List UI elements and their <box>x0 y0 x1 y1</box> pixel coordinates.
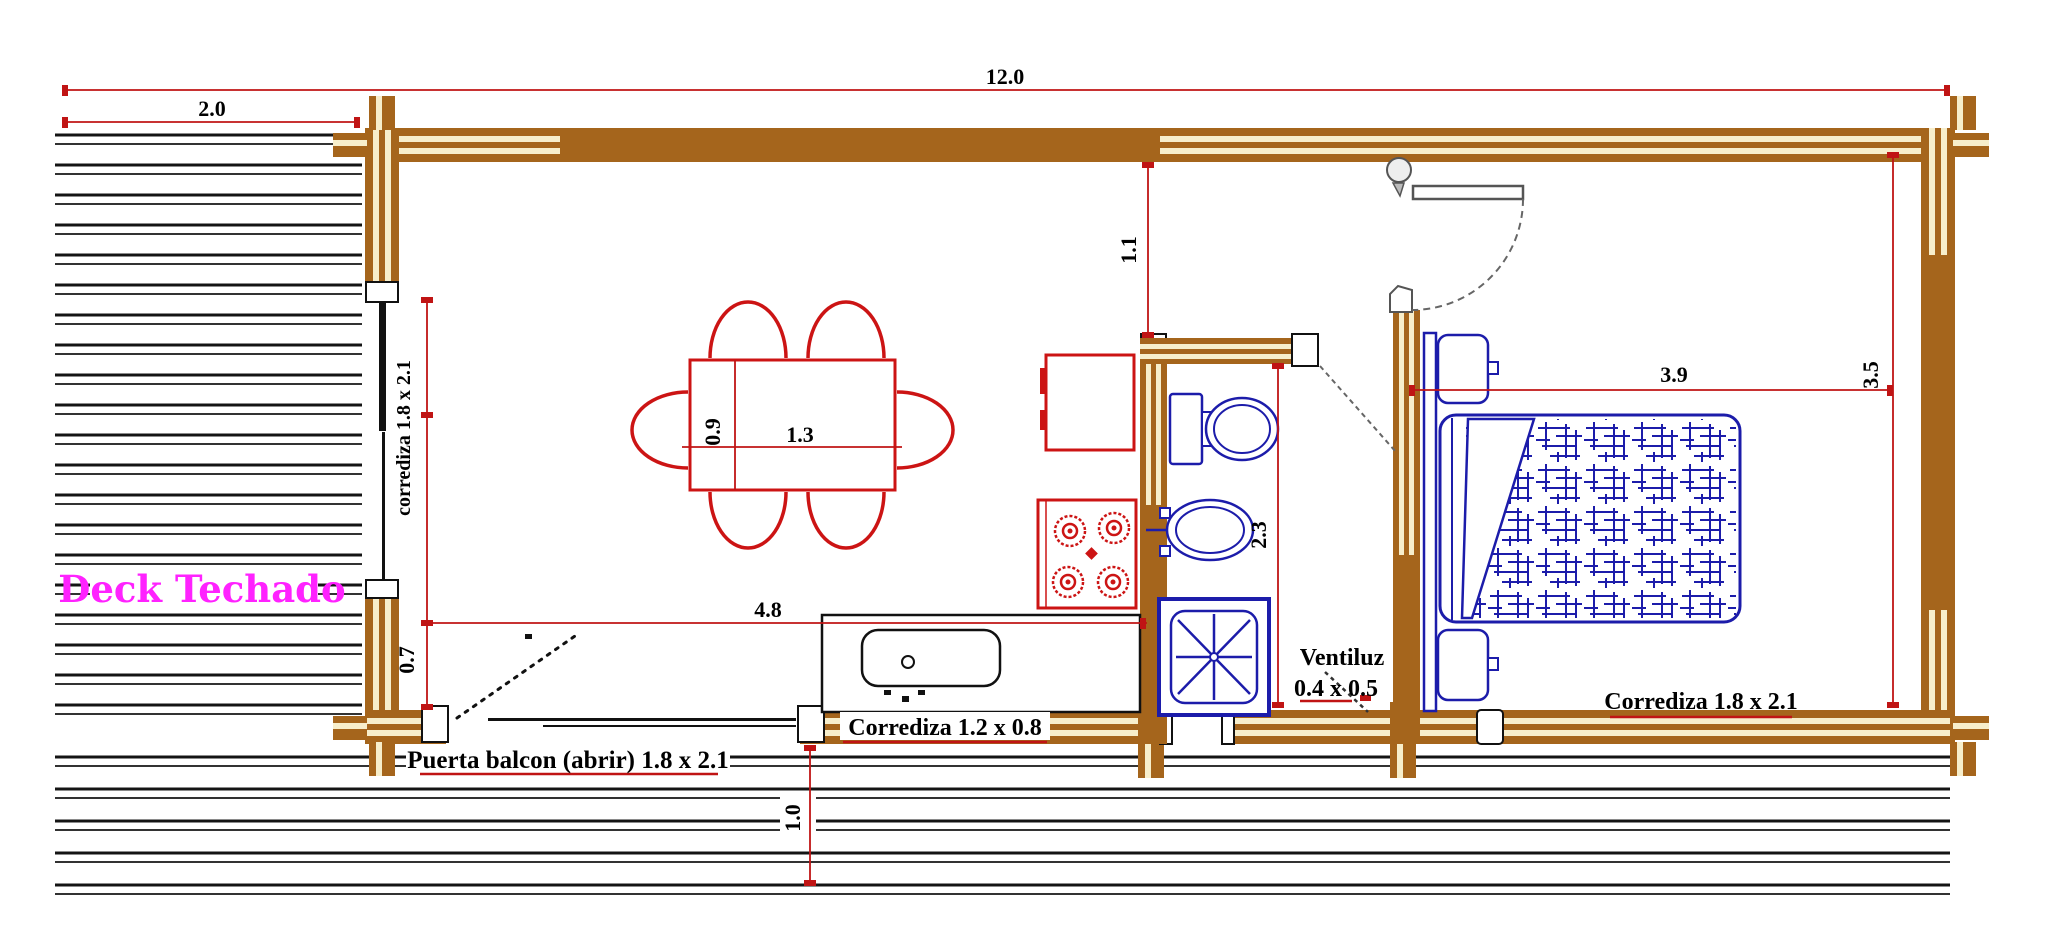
dim-bedroom-depth: 3.5 <box>1858 361 1883 389</box>
balcony-door-tick <box>525 634 532 639</box>
chair-top-right <box>808 302 884 358</box>
stove <box>1038 500 1136 608</box>
dim-bath-depth: 2.3 <box>1246 521 1271 549</box>
dim-deck-width: 2.0 <box>198 96 226 121</box>
label-balcony-door: Puerta balcon (abrir) 1.8 x 2.1 <box>407 747 728 774</box>
dim-living-width: 4.8 <box>754 597 782 622</box>
chair-left <box>632 392 688 468</box>
bedroom-door-swing-arc <box>1412 199 1523 310</box>
floor-plan-drawing: 12.0 2.0 corrediza 1.8 x 2.1 0.9 1.3 4.8… <box>0 0 2045 950</box>
deck-label: Deck Techado <box>58 567 345 611</box>
label-left-window: corrediza 1.8 x 2.1 <box>393 360 415 516</box>
fridge <box>1046 355 1134 450</box>
door-jamb-handle <box>1390 286 1412 312</box>
dim-total-width: 12.0 <box>986 64 1025 89</box>
label-ventiluz-2: 0.4 x 0.5 <box>1294 676 1378 702</box>
shower <box>1159 599 1269 715</box>
bottom-walkway-planks <box>55 757 1950 894</box>
left-window-pane-2 <box>382 432 385 580</box>
dim-bedroom-width: 3.9 <box>1660 362 1688 387</box>
left-window-pane <box>379 303 386 431</box>
bedroom-door-knob <box>1387 158 1411 182</box>
bathroom-door-leaf <box>1320 366 1396 452</box>
bedroom-door-leaf <box>1413 186 1523 199</box>
nightstand-bottom <box>1438 630 1488 700</box>
dim-table-depth: 0.9 <box>700 418 725 446</box>
kitchen-sink <box>862 630 1000 686</box>
label-kitchen-window: Corrediza 1.2 x 0.8 <box>848 715 1042 741</box>
label-ventiluz-1: Ventiluz <box>1300 645 1385 671</box>
dim-door-offset: 0.7 <box>394 646 419 674</box>
chair-bottom-left <box>710 492 786 548</box>
bathroom-sink <box>1146 500 1253 560</box>
balcony-door-threshold <box>488 718 796 721</box>
label-bedroom-window: Corrediza 1.8 x 2.1 <box>1604 689 1798 715</box>
chair-right <box>897 392 953 468</box>
chair-top-left <box>710 302 786 358</box>
covered-deck-planks <box>55 135 362 714</box>
nightstand-top <box>1438 335 1488 403</box>
chair-bottom-right <box>808 492 884 548</box>
toilet <box>1170 394 1278 464</box>
dim-table-width: 1.3 <box>786 422 814 447</box>
floor-plan-canvas: 12.0 2.0 corrediza 1.8 x 2.1 0.9 1.3 4.8… <box>0 0 2045 950</box>
dim-walkway-depth: 1.0 <box>780 804 805 832</box>
shower-drain <box>1210 653 1218 661</box>
dim-hall-depth: 1.1 <box>1116 236 1141 264</box>
